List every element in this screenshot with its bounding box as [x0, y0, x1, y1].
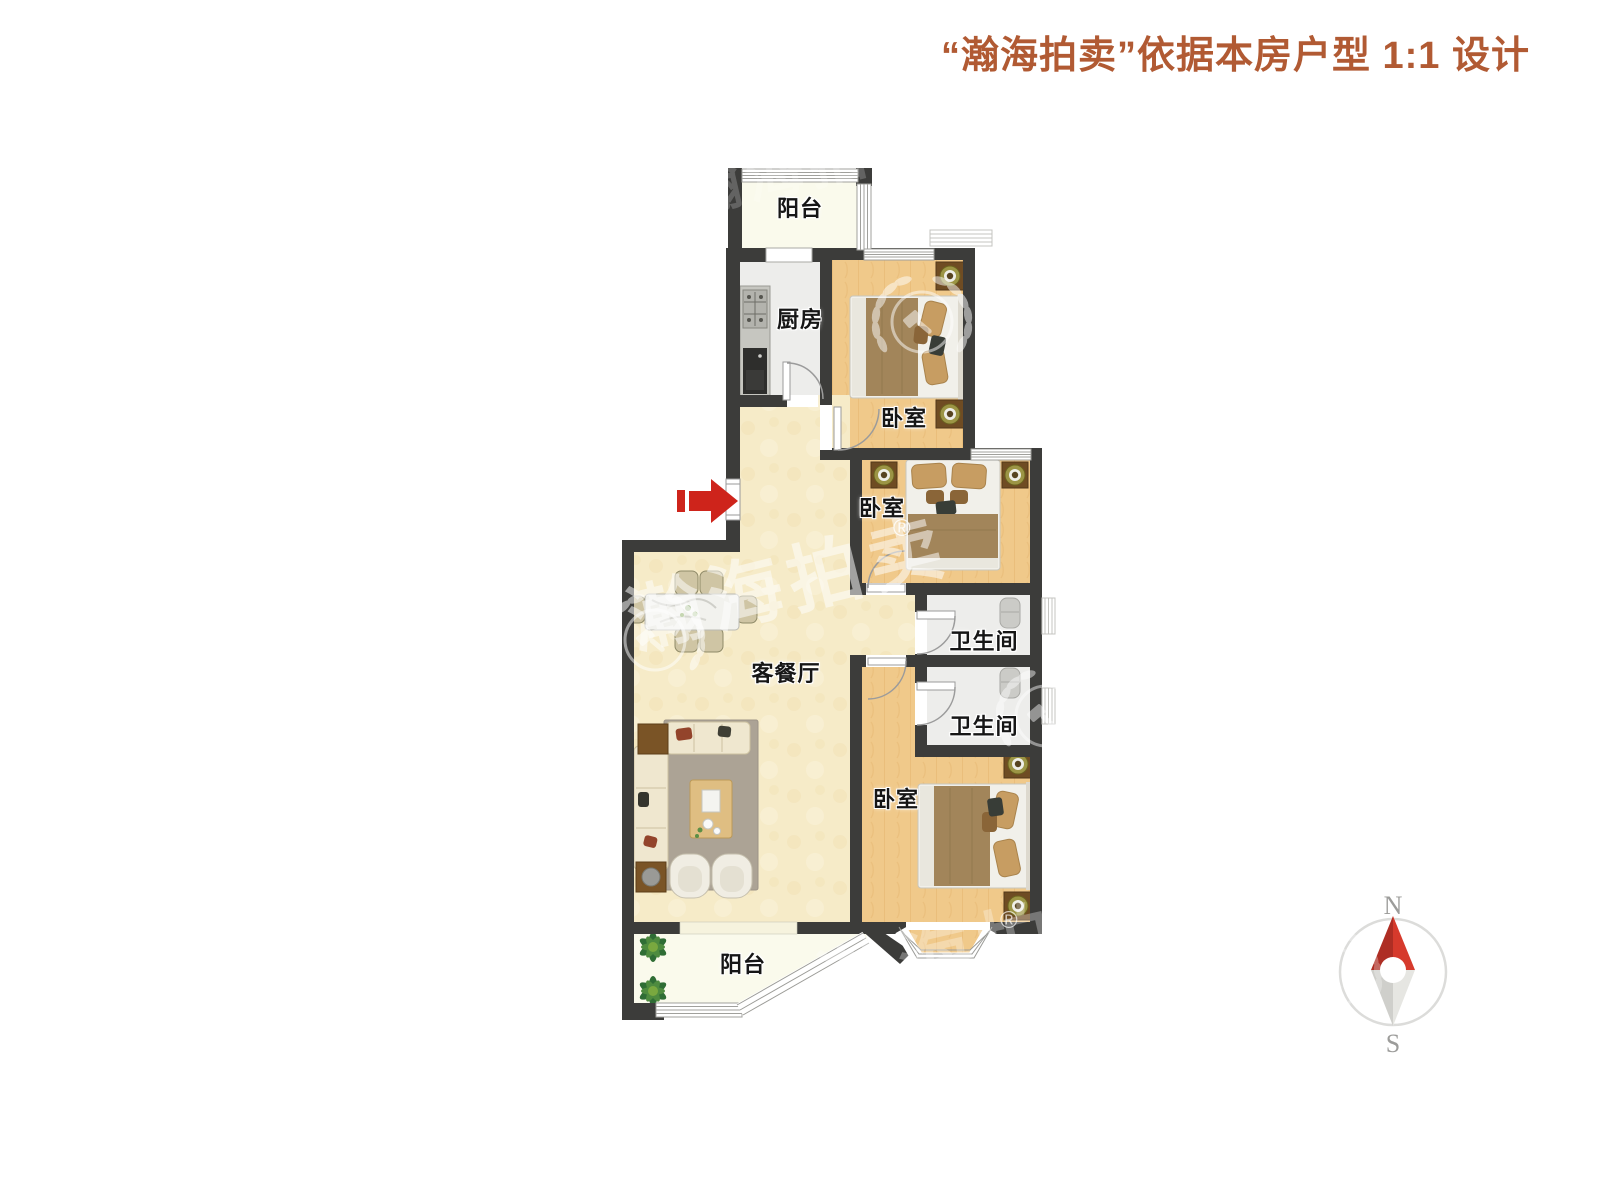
kitchen-counter	[740, 286, 770, 396]
compass: N S	[1340, 891, 1446, 1058]
floorplan-drawing: N S 瀚海拍卖 瀚海拍卖 瀚海拍卖 ® ®	[0, 0, 1600, 1200]
page-title: “瀚海拍卖”依据本房户型 1:1 设计	[941, 24, 1530, 79]
window	[656, 1003, 742, 1017]
room-label-kitchen: 厨房	[777, 302, 823, 334]
room-label-bedroom-middle: 卧室	[859, 491, 905, 523]
window-sill	[1042, 598, 1055, 634]
window	[864, 249, 934, 260]
laurel-watermark	[1281, 930, 1383, 1009]
registered-mark: ®	[1000, 907, 1018, 934]
compass-south-label: S	[1386, 1029, 1400, 1058]
room-label-bedroom-top: 卧室	[881, 401, 927, 433]
room-label-bathroom-lower: 卫生间	[949, 709, 1018, 741]
corner-table	[638, 724, 668, 754]
window-sill	[930, 230, 992, 246]
floorplan-page: N S 瀚海拍卖 瀚海拍卖 瀚海拍卖 ® ® 阳台 厨房 卧室 卧室 卫生间 卫…	[0, 0, 1600, 1200]
room-label-balcony-top: 阳台	[777, 191, 823, 223]
room-label-bathroom-upper: 卫生间	[949, 624, 1018, 656]
room-label-balcony-bottom: 阳台	[720, 947, 766, 979]
room-label-living-dining: 客餐厅	[751, 656, 820, 688]
window	[971, 449, 1031, 460]
bed-bottom	[918, 782, 1034, 890]
sofa-set	[634, 720, 758, 898]
window	[857, 184, 871, 250]
room-label-bedroom-bottom: 卧室	[873, 782, 919, 814]
compass-north-label: N	[1384, 891, 1403, 920]
